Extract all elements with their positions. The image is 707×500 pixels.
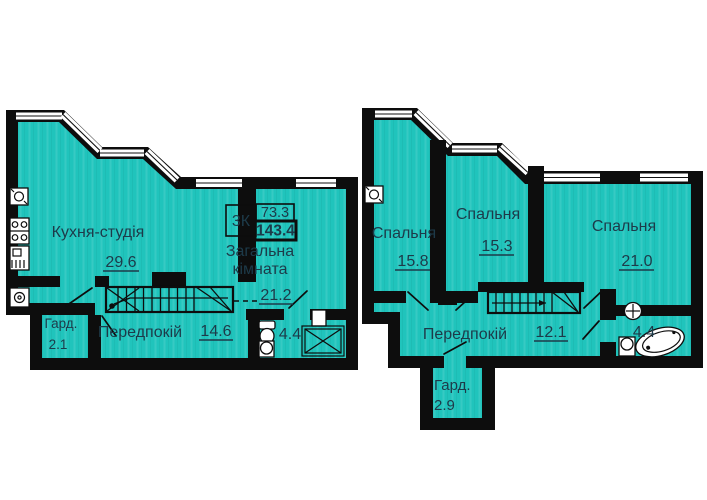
- room-label-hall: Передпокій: [423, 326, 507, 343]
- upper-floor-plan: Спальня 15.8 Спальня 15.3 Спальня 21.0 П…: [362, 108, 703, 430]
- floor-plan-page: 3К 73.3 143.4 Кухня-студія 29.6 Загальна…: [0, 0, 707, 500]
- room-area-wardrobe: 2.9: [434, 397, 455, 414]
- washer-box-icon: [312, 310, 326, 326]
- room-area-bedroom1: 15.8: [397, 253, 428, 270]
- apartment-total-area: 143.4: [256, 223, 295, 240]
- room-area-bedroom2: 15.3: [481, 238, 512, 255]
- room-label-wardrobe: Гард.: [434, 377, 471, 394]
- apartment-type-label: 3К: [232, 213, 251, 230]
- stove-icon: [10, 218, 29, 244]
- room-label-kitchen: Кухня-студія: [52, 224, 145, 241]
- lower-floor-plan: 3К 73.3 143.4 Кухня-студія 29.6 Загальна…: [6, 110, 358, 370]
- room-label-living-line2: кімната: [233, 261, 288, 278]
- room-label-bedroom3: Спальня: [592, 218, 656, 235]
- apartment-upper-area: 73.3: [261, 205, 289, 221]
- floor-plan-canvas: 3К 73.3 143.4 Кухня-студія 29.6 Загальна…: [0, 0, 707, 500]
- room-area-living: 21.2: [260, 287, 291, 304]
- pedestal-sink-icon: [259, 341, 274, 357]
- room-label-living-line1: Загальна: [226, 243, 294, 260]
- kitchen-sink-icon: [10, 246, 29, 270]
- room-area-hall: 12.1: [535, 324, 566, 341]
- room-area-wardrobe: 2.1: [49, 337, 68, 352]
- room-area-hall: 14.6: [200, 323, 231, 340]
- room-area-bathroom: 4.4: [633, 324, 655, 341]
- room-label-hall: Передпокій: [98, 324, 182, 341]
- room-area-kitchen: 29.6: [105, 254, 136, 271]
- toilet-icon: [625, 303, 642, 320]
- room-label-bedroom1: Спальня: [372, 225, 436, 242]
- room-label-wardrobe: Гард.: [45, 316, 78, 331]
- vent-shaft-icon: [10, 188, 28, 205]
- room-area-bedroom3: 21.0: [621, 253, 652, 270]
- room-area-bathroom: 4.4: [279, 326, 301, 343]
- washing-machine-icon: [10, 288, 29, 307]
- room-label-bedroom2: Спальня: [456, 206, 520, 223]
- vent-shaft-icon: [365, 186, 383, 203]
- toilet-icon: [259, 321, 275, 344]
